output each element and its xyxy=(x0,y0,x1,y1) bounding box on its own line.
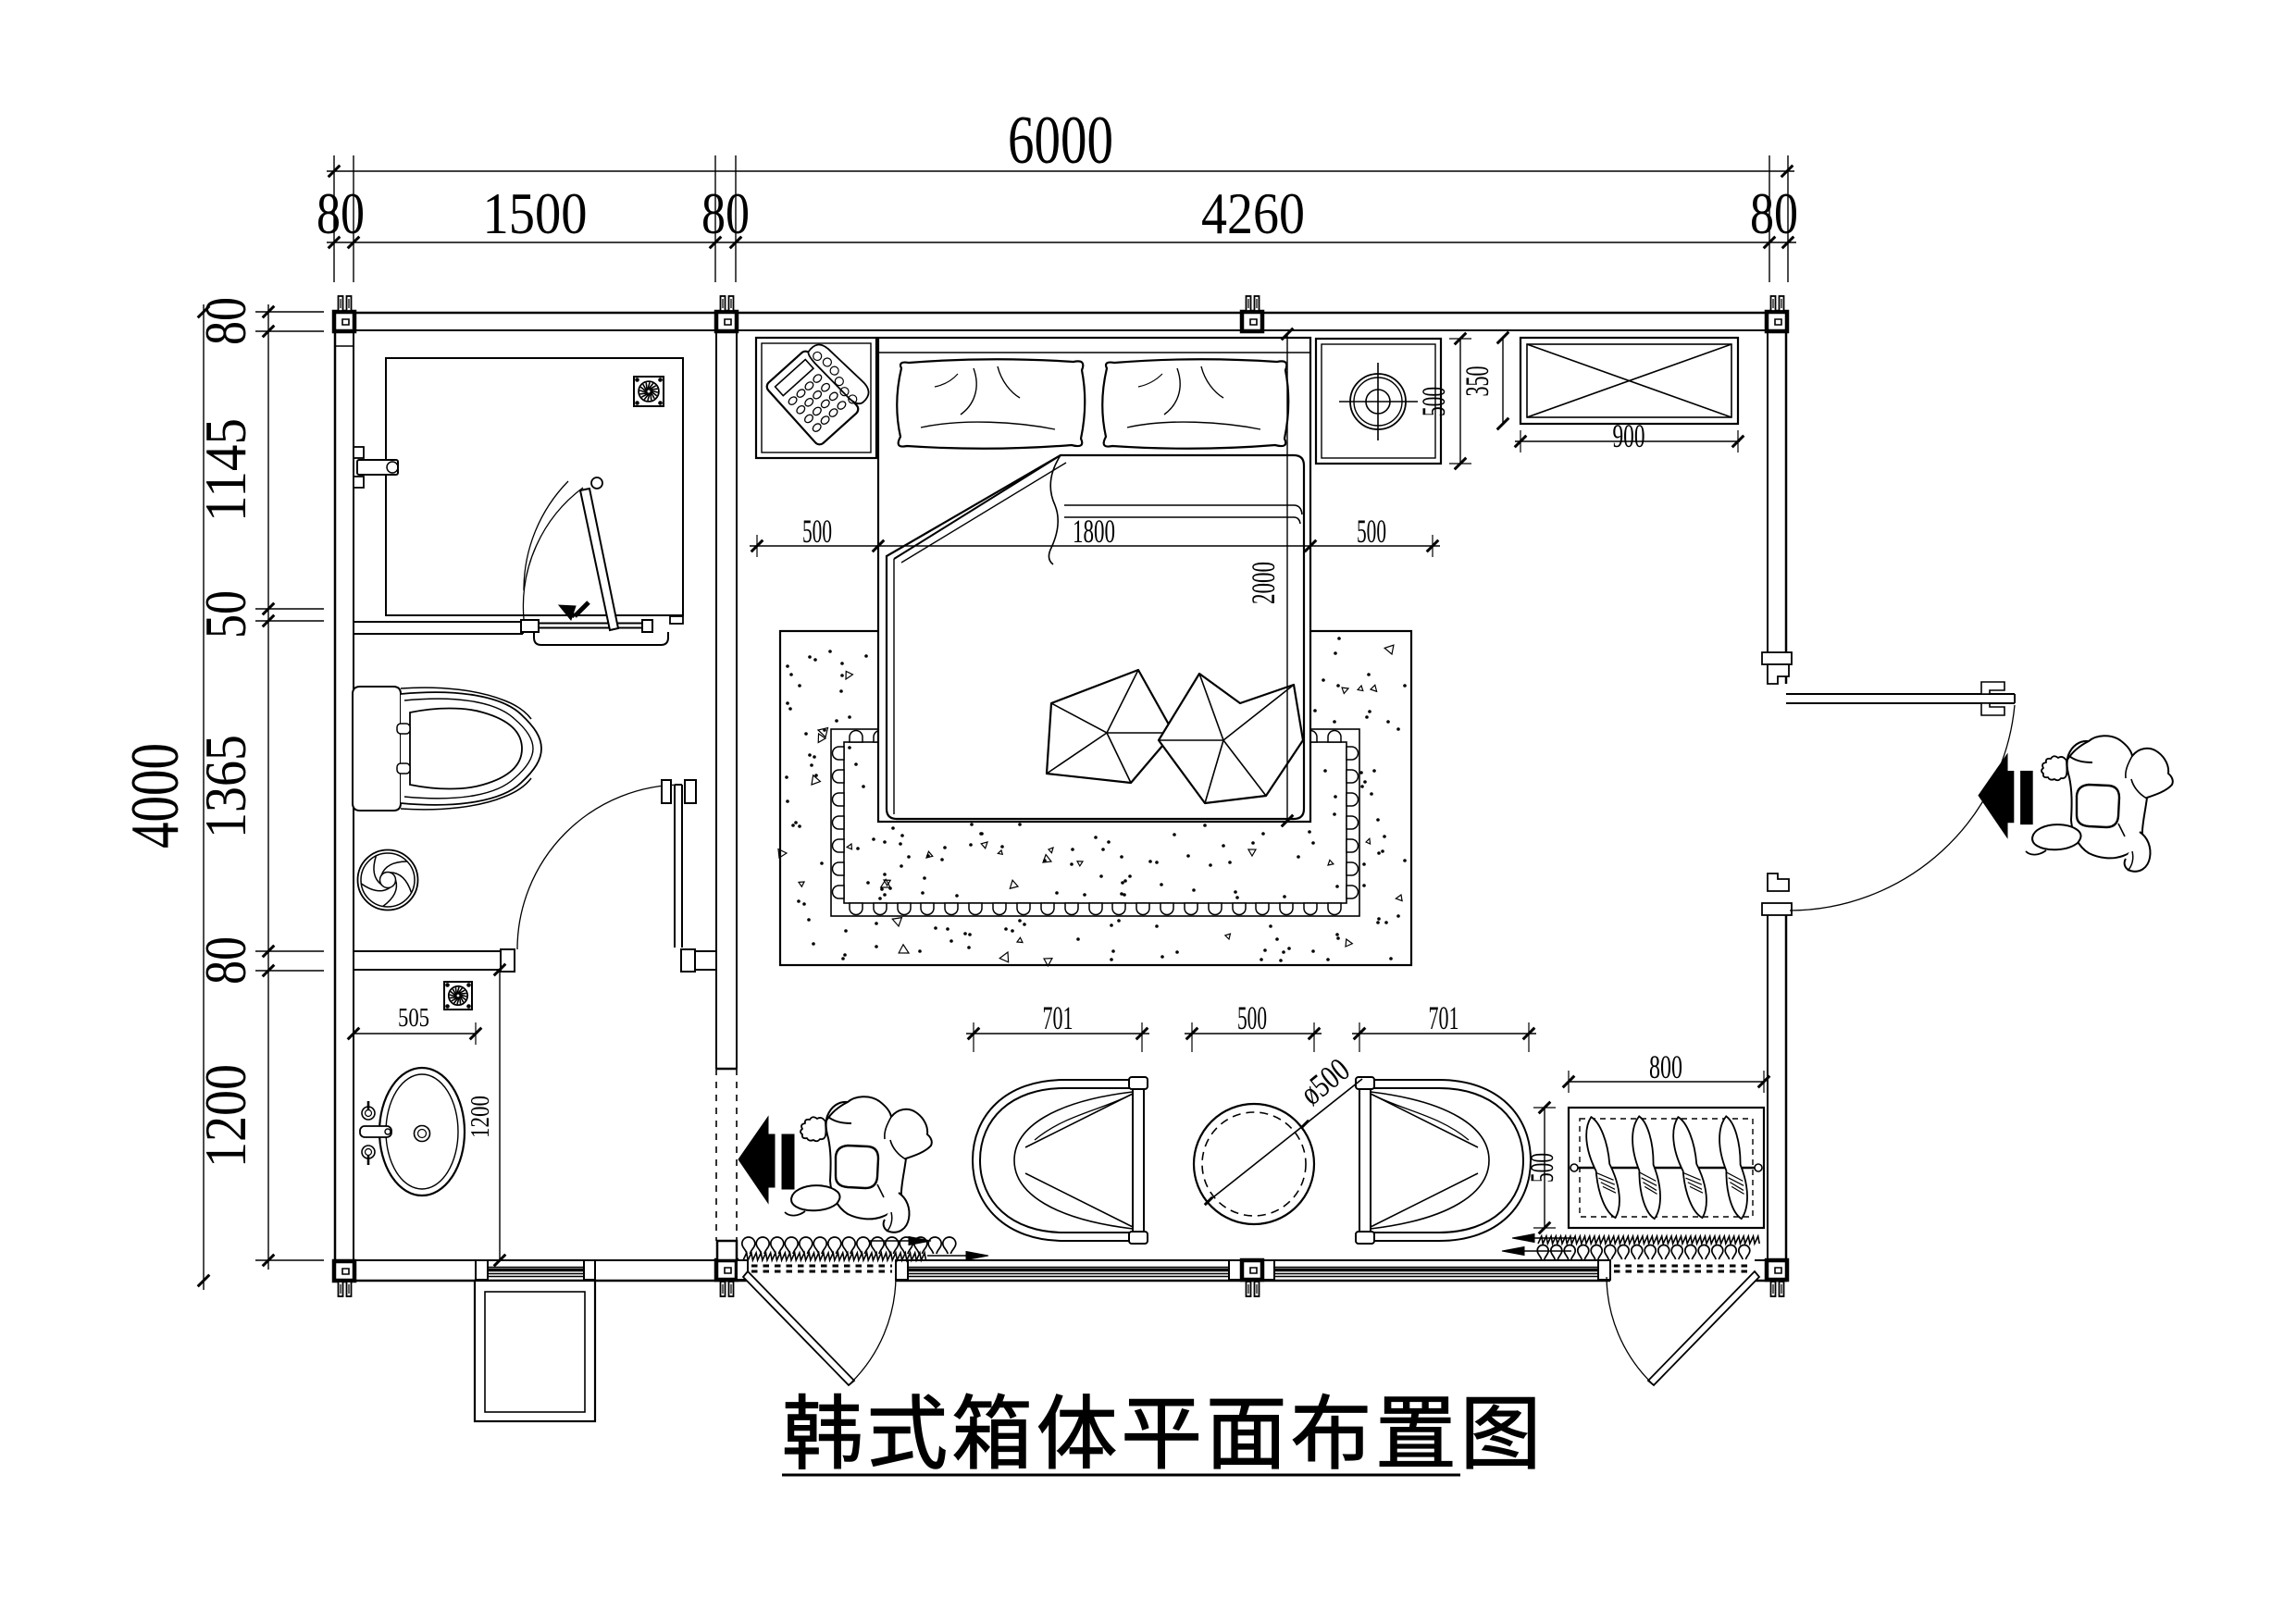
svg-text:1200: 1200 xyxy=(193,1064,258,1168)
svg-text:80: 80 xyxy=(1750,181,1798,246)
svg-text:1365: 1365 xyxy=(193,735,258,838)
svg-text:500: 500 xyxy=(1237,999,1267,1036)
svg-text:701: 701 xyxy=(1429,999,1459,1036)
svg-text:500: 500 xyxy=(1415,387,1452,416)
svg-text:500: 500 xyxy=(1357,513,1386,550)
svg-text:505: 505 xyxy=(398,1004,429,1033)
svg-text:701: 701 xyxy=(1043,999,1074,1036)
svg-text:80: 80 xyxy=(193,297,258,345)
svg-text:1145: 1145 xyxy=(193,418,258,522)
svg-text:80: 80 xyxy=(701,181,750,246)
svg-text:50: 50 xyxy=(193,590,258,638)
svg-text:1800: 1800 xyxy=(1073,513,1115,550)
svg-text:900: 900 xyxy=(1613,417,1645,454)
svg-text:4260: 4260 xyxy=(1201,181,1305,246)
svg-text:500: 500 xyxy=(1523,1153,1560,1183)
svg-text:350: 350 xyxy=(1458,366,1496,397)
svg-text:4000: 4000 xyxy=(118,743,193,849)
svg-text:80: 80 xyxy=(316,181,365,246)
svg-text:1500: 1500 xyxy=(483,181,588,246)
svg-text:800: 800 xyxy=(1649,1048,1682,1085)
svg-text:2000: 2000 xyxy=(1245,562,1282,604)
svg-text:1200: 1200 xyxy=(466,1096,495,1138)
svg-text:500: 500 xyxy=(802,513,832,550)
svg-text:80: 80 xyxy=(193,936,258,985)
svg-text:6000: 6000 xyxy=(1008,103,1113,179)
